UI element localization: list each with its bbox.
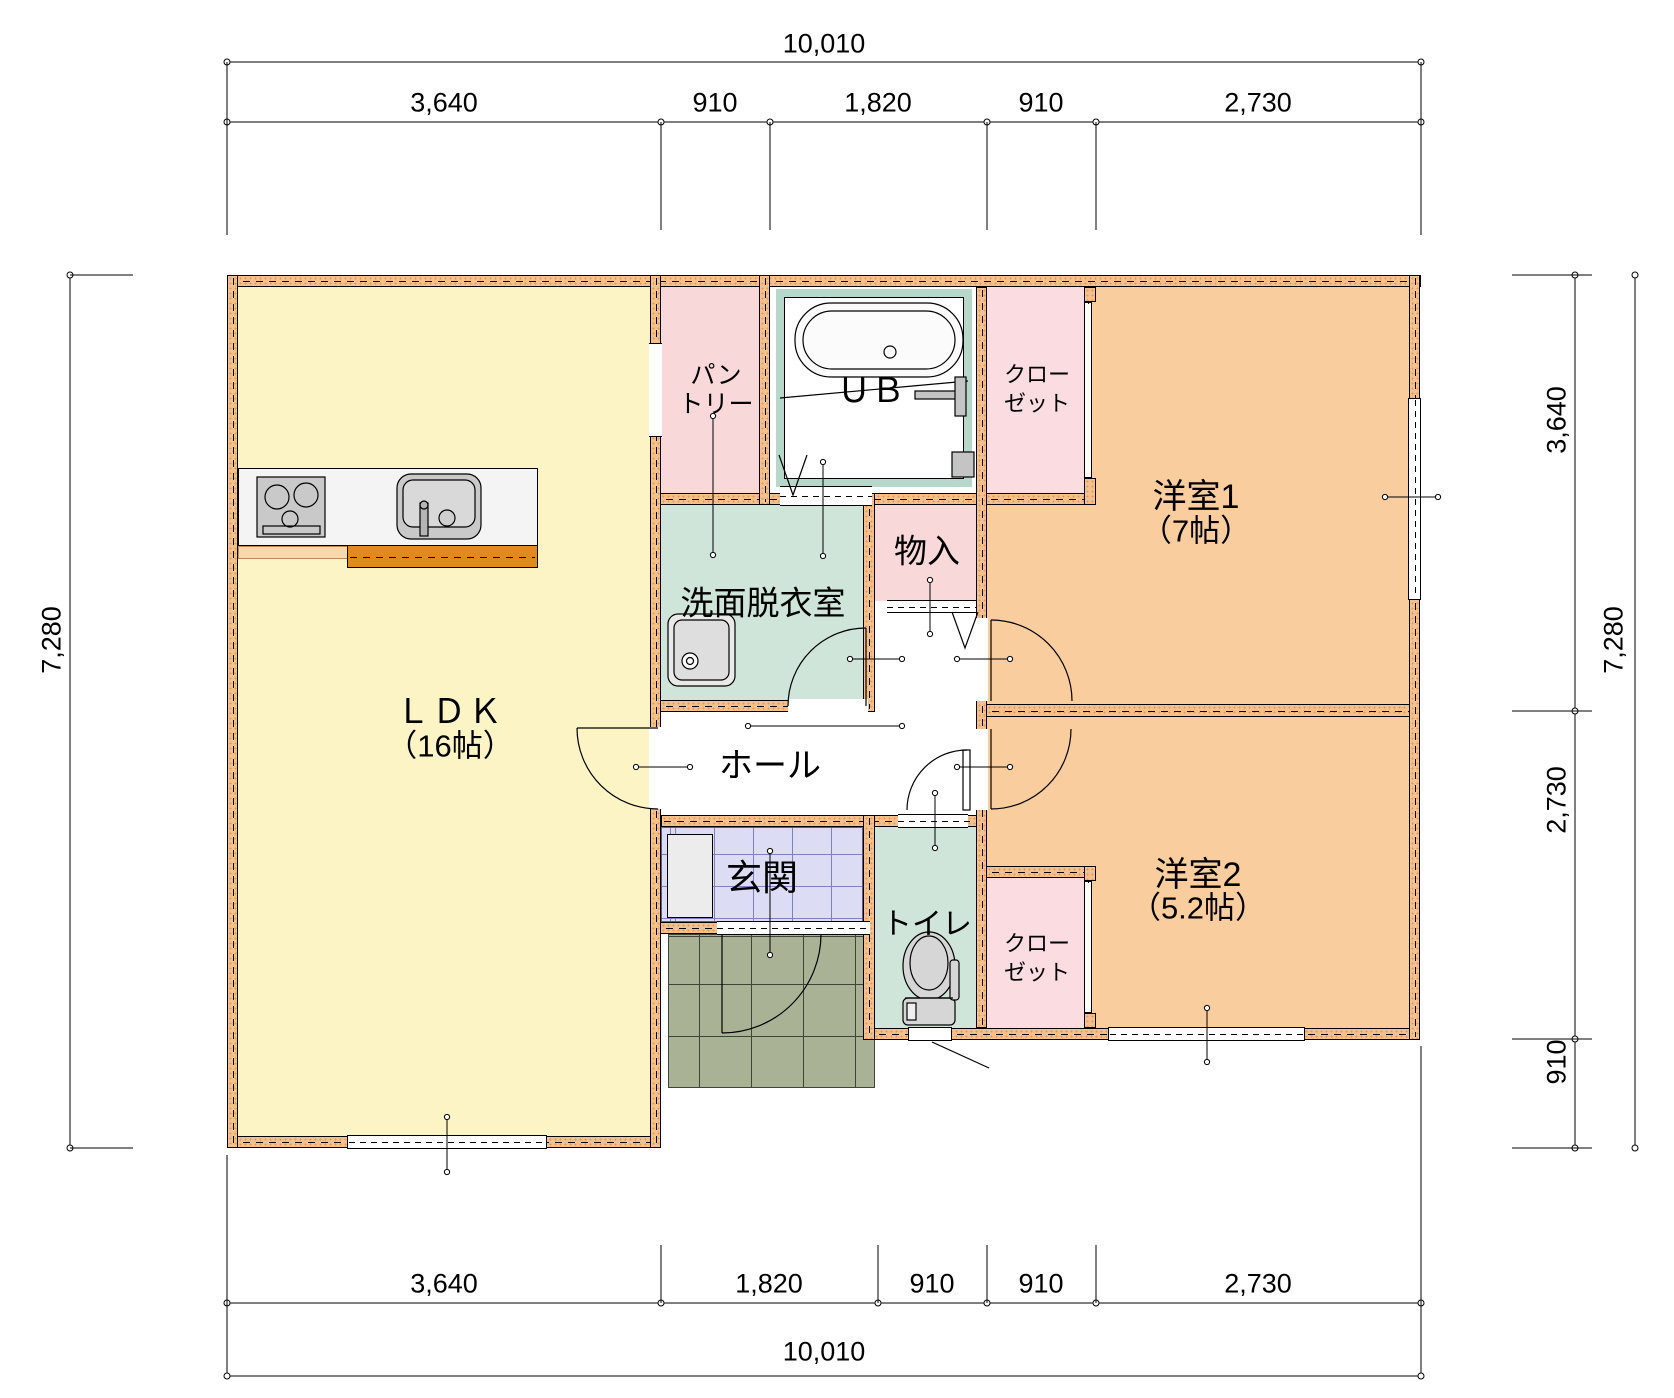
wall-top [227, 275, 1421, 287]
porch-tiles [668, 934, 875, 1088]
kitchen-counter-front-bar [347, 545, 538, 568]
western2-door-opening [975, 729, 988, 810]
label-closet2-2: ゼット [1004, 962, 1070, 984]
kitchen-counter [238, 468, 538, 546]
closet2-door [1084, 881, 1092, 1013]
pantry-opening [649, 343, 662, 437]
dim-top-seg-2: 910 [692, 90, 737, 117]
label-western1-size: （7帖） [1141, 516, 1251, 547]
label-pantry-1: パン [690, 364, 741, 389]
dim-bottom-seg-4: 910 [1018, 1271, 1063, 1298]
dim-top-seg-3: 1,820 [844, 90, 912, 117]
label-storage: 物入 [894, 535, 960, 568]
ldk-window [347, 1135, 547, 1149]
dim-bottom-seg-5: 2,730 [1224, 1271, 1292, 1298]
wall-right [1409, 275, 1420, 1040]
ldk-door-opening [649, 727, 662, 809]
dim-left-total: 7,280 [39, 606, 66, 674]
label-western2: 洋室2 [1155, 858, 1242, 892]
label-western1: 洋室1 [1153, 480, 1240, 514]
dim-top-seg-5: 2,730 [1224, 90, 1292, 117]
label-pantry-2: トリー [678, 393, 753, 418]
label-washroom: 洗面脱衣室 [681, 587, 846, 620]
toilet-door-opening [898, 814, 968, 828]
dim-bottom-seg-3: 910 [909, 1271, 954, 1298]
label-ldk: ＬＤＫ [396, 695, 504, 729]
label-western2-size: （5.2帖） [1130, 893, 1266, 924]
floor-plan: 10,010 3,640 910 1,820 910 2,730 3,640 1… [0, 0, 1674, 1398]
wall-washroom-right [863, 493, 875, 712]
wall-closet2-stub-top [1084, 866, 1096, 881]
bath-door-track [780, 486, 872, 506]
wall-pantry-ub [759, 275, 770, 505]
dim-right-seg-2: 2,730 [1544, 766, 1571, 834]
label-closet1-2: ゼット [1004, 393, 1070, 415]
closet1-door [1084, 302, 1092, 478]
wall-western-divider [976, 704, 1420, 717]
wall-closet2-top [976, 866, 1096, 878]
label-entrance: 玄関 [726, 860, 798, 896]
toilet-window [908, 1027, 952, 1041]
wall-closet1-stub-bottom [1084, 478, 1096, 505]
label-toilet: トイレ [882, 910, 972, 940]
washroom-door-opening [788, 699, 868, 713]
dim-bottom-seg-2: 1,820 [735, 1271, 803, 1298]
dim-bottom-seg-1: 3,640 [410, 1271, 478, 1298]
dim-right-total: 7,280 [1601, 606, 1628, 674]
western1-window [1408, 398, 1421, 600]
wall-left [227, 275, 238, 1148]
label-ldk-size: （16帖） [386, 731, 513, 762]
toilet-door [907, 750, 970, 810]
room-closet1 [987, 287, 1085, 493]
toilet-window-vent-mark [932, 1042, 989, 1068]
shoe-cabinet [667, 834, 713, 918]
label-closet1-1: クロー [1004, 364, 1070, 386]
wall-closet1-stub-top [1084, 287, 1096, 302]
entrance-door-sill [717, 921, 870, 935]
western1-door-opening [975, 618, 988, 701]
dim-right-seg-3: 910 [1544, 1039, 1571, 1084]
kitchen-counter-side-band [238, 546, 348, 559]
dim-right-seg-1: 3,640 [1544, 386, 1571, 454]
label-hall: ホール [719, 749, 821, 783]
label-bath: ＵＢ [837, 374, 905, 408]
storage-door-track [887, 600, 976, 613]
dim-top-total: 10,010 [783, 31, 866, 58]
wall-closet2-stub-bottom [1084, 1013, 1096, 1028]
dim-bottom-total: 10,010 [783, 1339, 866, 1366]
western2-window [1108, 1027, 1305, 1041]
dim-top-seg-4: 910 [1018, 90, 1063, 117]
label-closet2-1: クロー [1004, 933, 1070, 955]
dim-top-seg-1: 3,640 [410, 90, 478, 117]
